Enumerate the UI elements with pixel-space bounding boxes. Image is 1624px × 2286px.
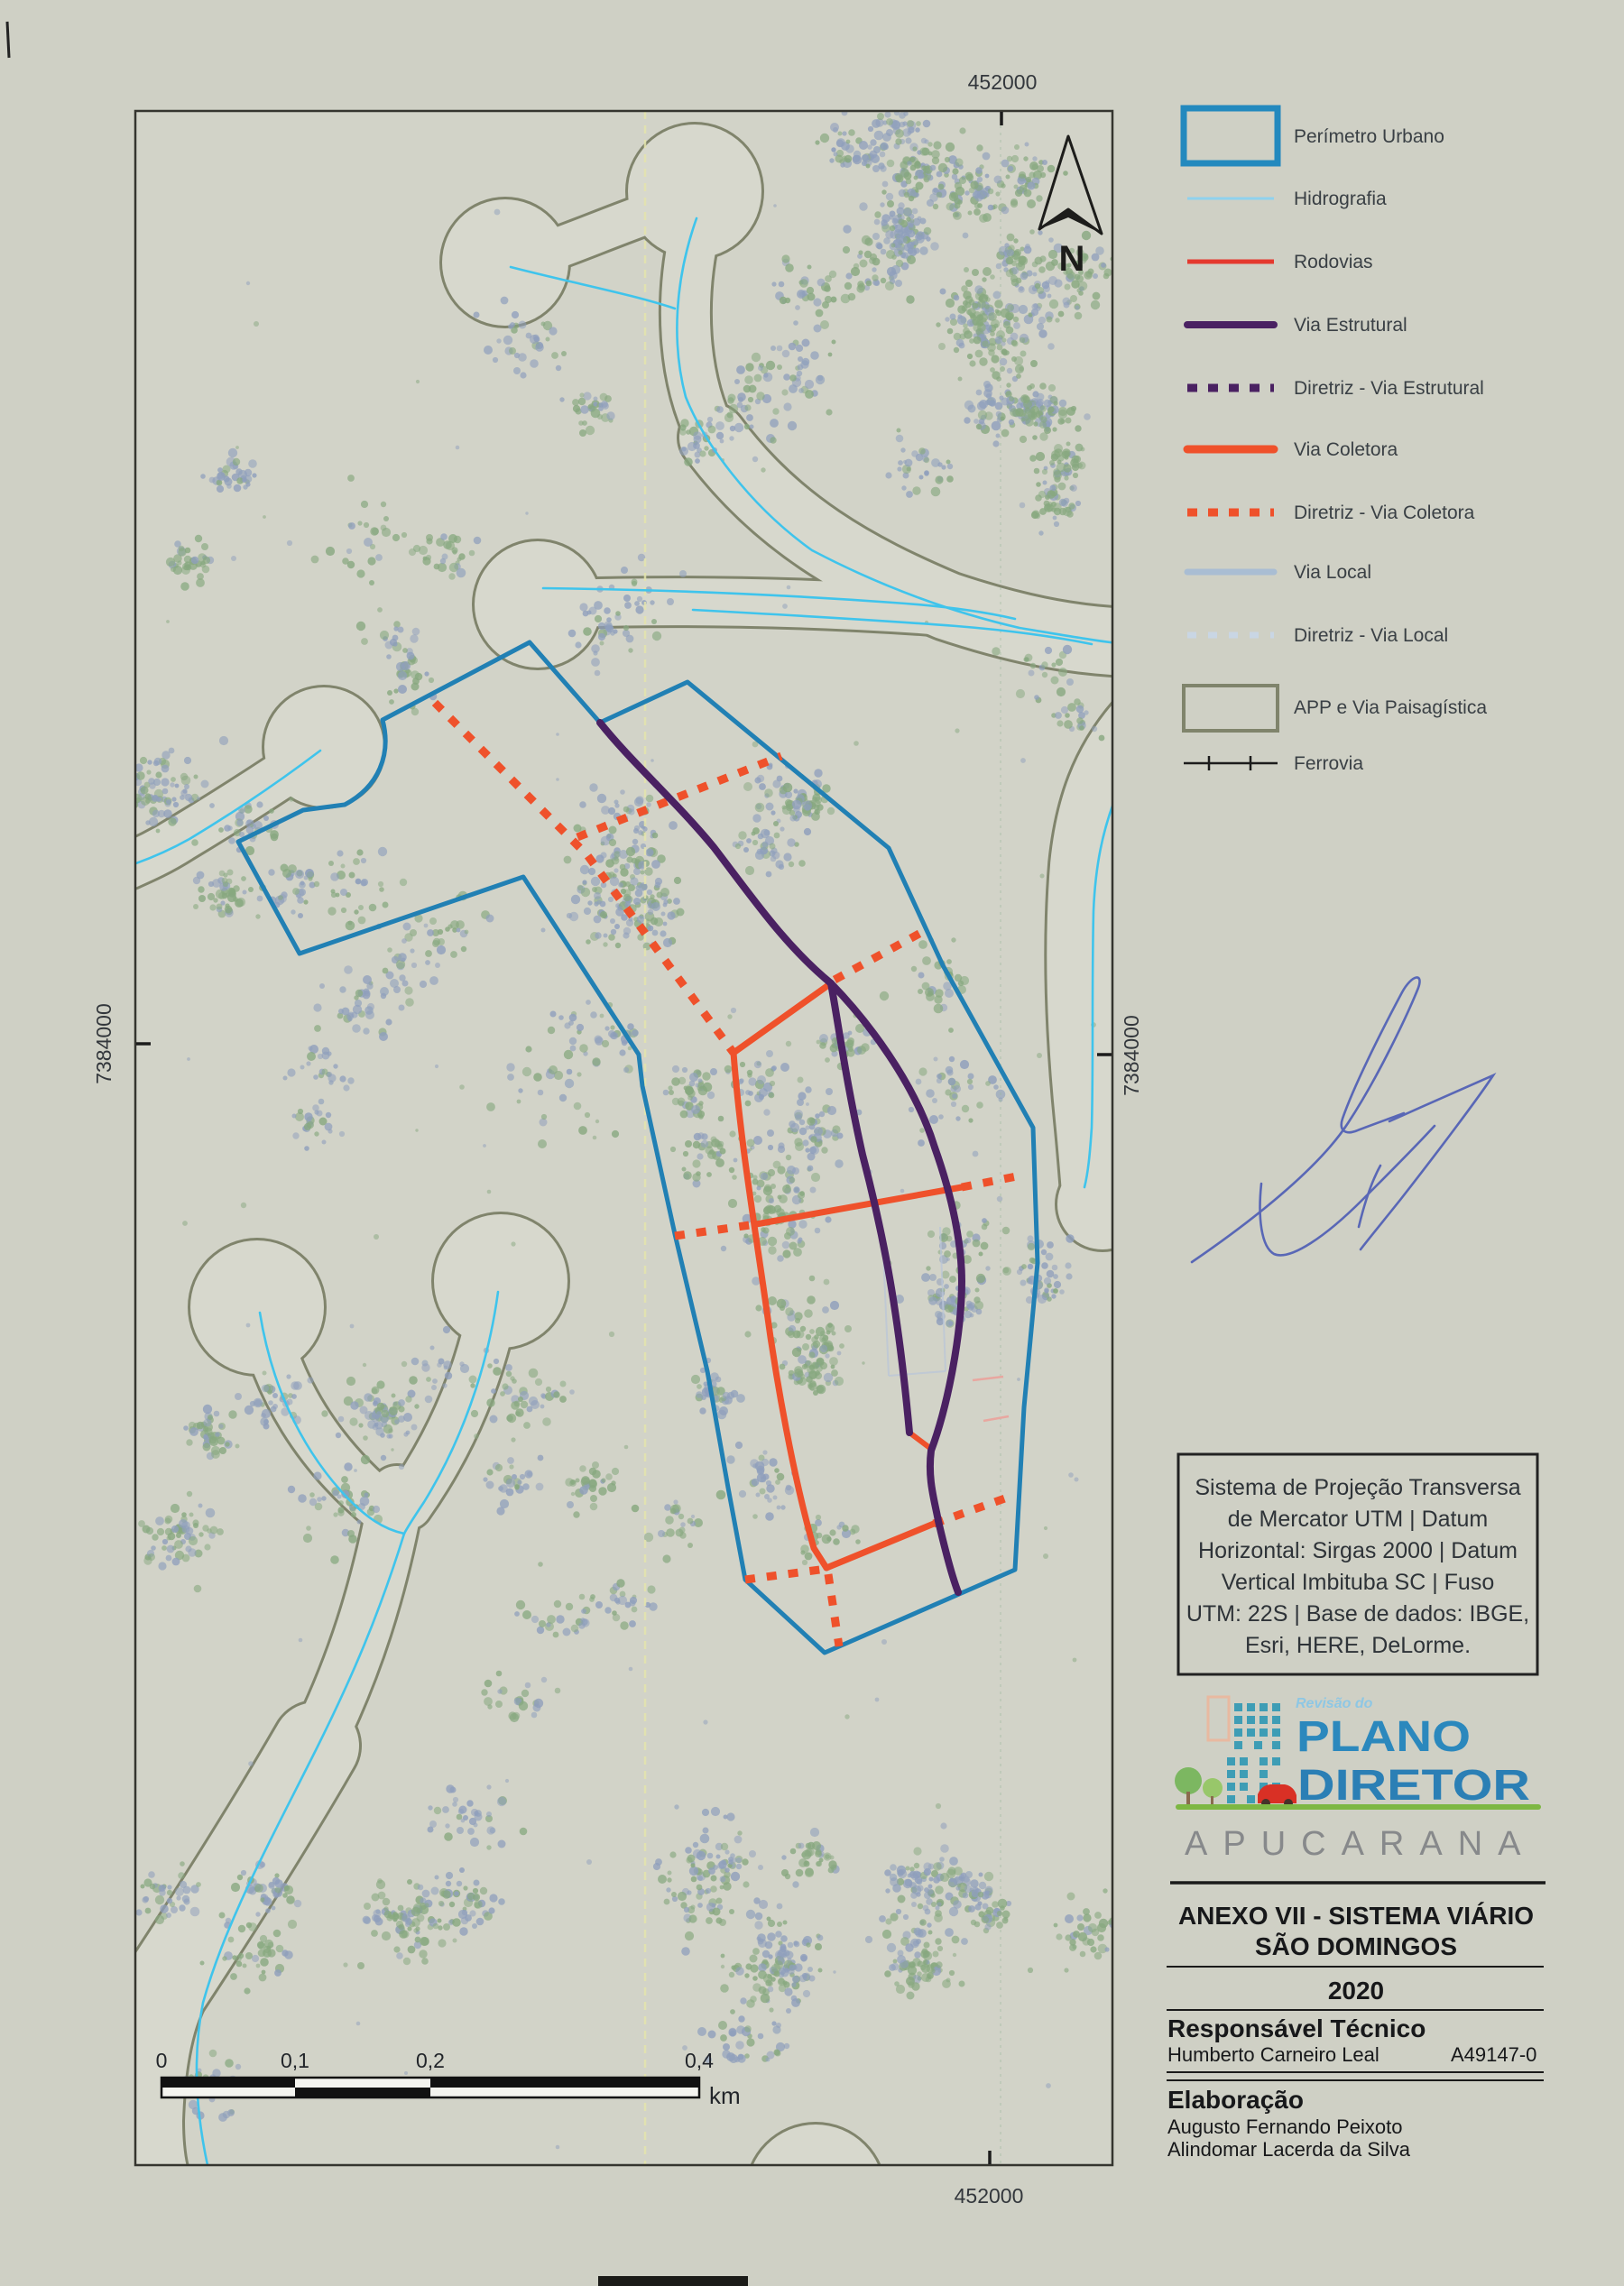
svg-text:N: N <box>1059 239 1085 279</box>
svg-text:452000: 452000 <box>968 70 1038 94</box>
svg-text:Diretriz - Via Local: Diretriz - Via Local <box>1294 625 1448 646</box>
svg-text:Responsável Técnico: Responsável Técnico <box>1167 2014 1426 2042</box>
svg-text:0: 0 <box>156 2049 168 2072</box>
svg-text:Augusto Fernando Peixoto: Augusto Fernando Peixoto <box>1167 2115 1403 2138</box>
svg-text:0,1: 0,1 <box>281 2049 309 2072</box>
svg-text:Alindomar Lacerda da Silva: Alindomar Lacerda da Silva <box>1167 2138 1411 2161</box>
svg-text:7384000: 7384000 <box>1120 1015 1143 1096</box>
svg-text:km: km <box>709 2082 741 2109</box>
svg-text:Rodovias: Rodovias <box>1294 252 1373 272</box>
svg-text:0,4: 0,4 <box>685 2049 714 2072</box>
svg-text:Horizontal: Sirgas 2000 | Datu: Horizontal: Sirgas 2000 | Datum <box>1198 1538 1518 1563</box>
svg-text:Revisão do: Revisão do <box>1296 1696 1373 1711</box>
svg-text:ANEXO VII - SISTEMA VIÁRIO: ANEXO VII - SISTEMA VIÁRIO <box>1178 1902 1534 1930</box>
svg-text:A49147-0: A49147-0 <box>1451 2043 1536 2066</box>
svg-text:PLANO: PLANO <box>1296 1713 1471 1761</box>
svg-text:de Mercator UTM | Datum: de Mercator UTM | Datum <box>1228 1507 1489 1532</box>
svg-text:Diretriz - Via Coletora: Diretriz - Via Coletora <box>1294 502 1475 523</box>
svg-text:APUCARANA: APUCARANA <box>1185 1825 1536 1863</box>
svg-text:Via Coletora: Via Coletora <box>1294 439 1398 460</box>
svg-text:APP e Via Paisagística: APP e Via Paisagística <box>1294 697 1487 718</box>
svg-text:Esri, HERE, DeLorme.: Esri, HERE, DeLorme. <box>1245 1633 1471 1658</box>
svg-text:Via Local: Via Local <box>1294 562 1371 583</box>
svg-text:7384000: 7384000 <box>92 1003 115 1084</box>
svg-text:0,2: 0,2 <box>416 2049 445 2072</box>
svg-text:Perímetro Urbano: Perímetro Urbano <box>1294 126 1444 147</box>
svg-text:Vertical Imbituba SC | Fuso: Vertical Imbituba SC | Fuso <box>1222 1570 1494 1595</box>
svg-text:Elaboração: Elaboração <box>1167 2086 1304 2114</box>
svg-text:Humberto Carneiro Leal: Humberto Carneiro Leal <box>1167 2043 1379 2066</box>
svg-text:Hidrografia: Hidrografia <box>1294 189 1387 209</box>
svg-text:DIRETOR: DIRETOR <box>1297 1762 1530 1810</box>
svg-text:Diretriz - Via Estrutural: Diretriz - Via Estrutural <box>1294 378 1484 399</box>
svg-text:Ferrovia: Ferrovia <box>1294 753 1363 774</box>
svg-text:452000: 452000 <box>955 2184 1024 2208</box>
svg-text:UTM: 22S | Base de dados: IBGE: UTM: 22S | Base de dados: IBGE, <box>1186 1601 1529 1627</box>
svg-text:Via Estrutural: Via Estrutural <box>1294 315 1407 336</box>
svg-text:SÃO DOMINGOS: SÃO DOMINGOS <box>1255 1932 1457 1960</box>
svg-text:Sistema de Projeção Transversa: Sistema de Projeção Transversa <box>1195 1475 1520 1500</box>
svg-text:2020: 2020 <box>1328 1977 1384 2005</box>
